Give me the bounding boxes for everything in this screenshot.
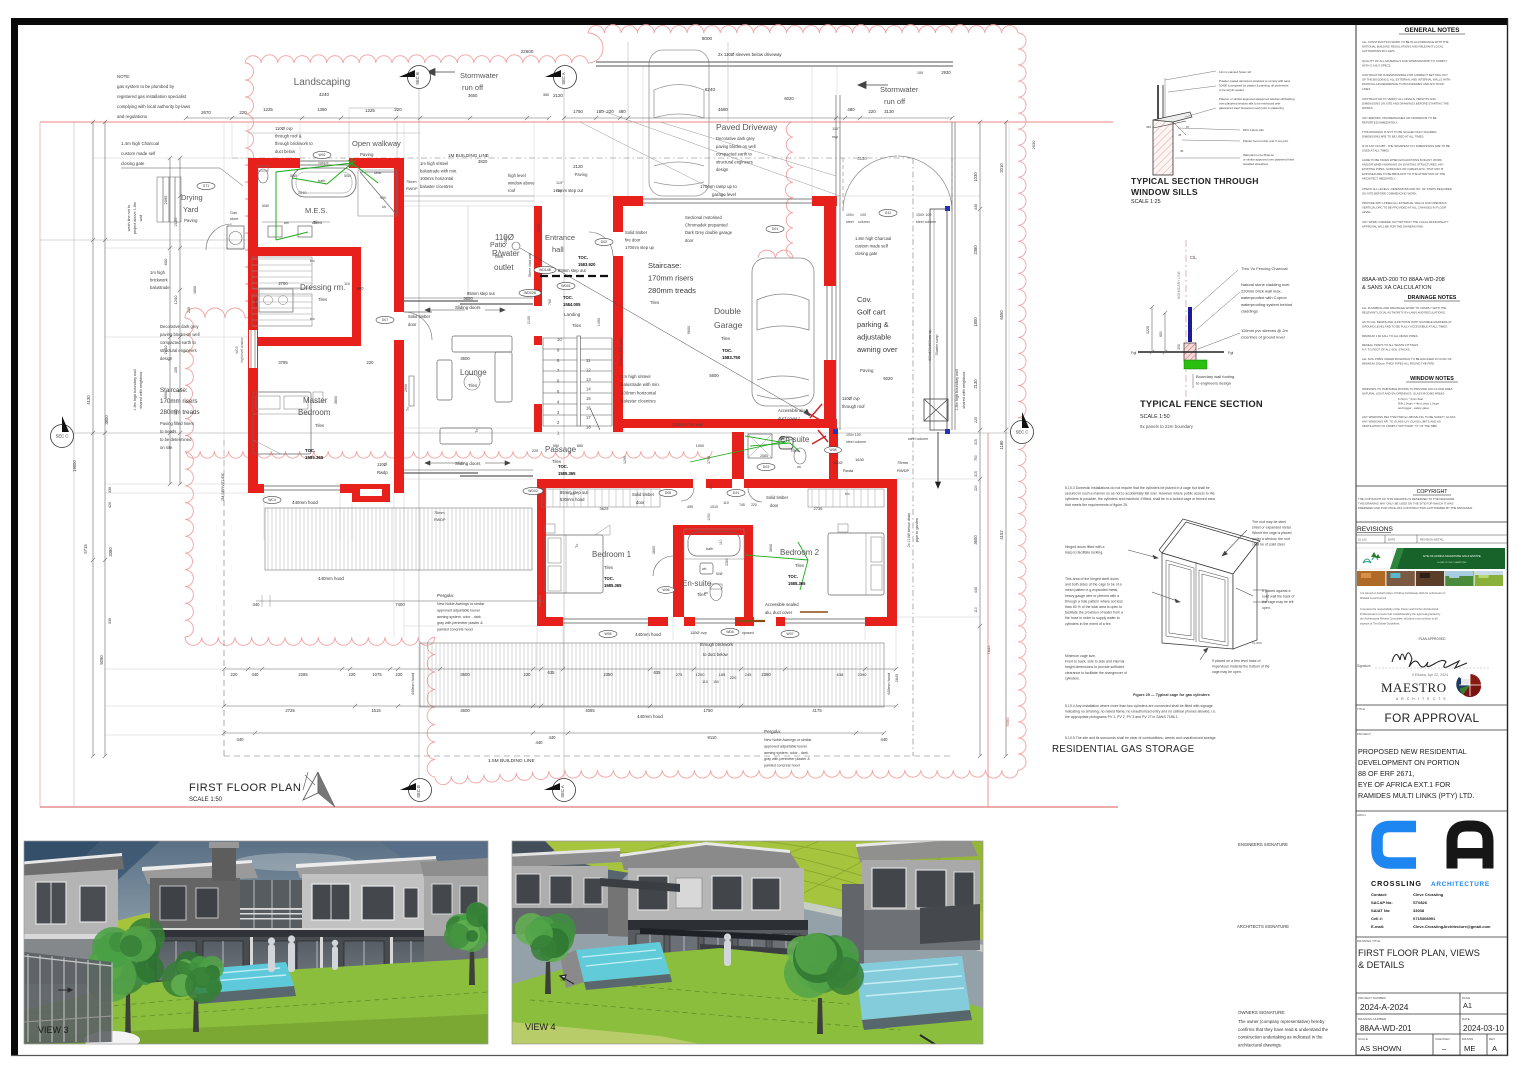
svg-text:Tiles: Tiles <box>604 565 614 570</box>
svg-text:sh: sh <box>382 205 386 209</box>
svg-text:Plaster formed drip and V-cut: Plaster formed drip and V-cut joint <box>1243 139 1288 143</box>
svg-text:WINDOW NOTES: WINDOW NOTES <box>1410 376 1454 382</box>
svg-text:2100: 2100 <box>527 316 531 324</box>
svg-text:280mm treads: 280mm treads <box>648 286 696 295</box>
svg-text:through roof &: through roof & <box>275 134 302 139</box>
svg-text:TOC.: TOC. <box>578 255 588 260</box>
svg-text:VIEW 3: VIEW 3 <box>38 1025 69 1035</box>
svg-text:DATE: DATE <box>1388 538 1395 542</box>
svg-text:1180: 1180 <box>999 440 1004 450</box>
svg-text:75mm: 75mm <box>897 460 909 465</box>
svg-text:850: 850 <box>577 444 583 448</box>
svg-text:DRAWN: DRAWN <box>1462 1037 1473 1041</box>
svg-text:2x 110Ø sleeves below driveway: 2x 110Ø sleeves below driveway <box>718 52 782 57</box>
svg-text:4175: 4175 <box>812 708 822 713</box>
svg-text:ANY WINDOWS PE4 THAN 500mm ABO: ANY WINDOWS PE4 THAN 500mm ABOVE FFL TO … <box>1362 415 1455 419</box>
svg-text:WD3: WD3 <box>235 346 239 353</box>
svg-text:1630: 1630 <box>855 457 865 462</box>
svg-text:gray with perimeter plaster &: gray with perimeter plaster & <box>764 757 810 761</box>
svg-text:shared with neighbour: shared with neighbour <box>962 371 966 409</box>
svg-text:window above: window above <box>508 181 535 186</box>
svg-text:110: 110 <box>702 680 708 684</box>
svg-text:220: 220 <box>524 672 532 677</box>
svg-text:BOUNDARY LINE: BOUNDARY LINE <box>1177 270 1181 298</box>
svg-text:ANY WINDOWS NR. TO GLASS LVY: ANY WINDOWS NR. TO GLASS LVY GLASS LIMIT… <box>1362 420 1441 424</box>
svg-text:to engineers design: to engineers design <box>1196 381 1231 386</box>
svg-text:3380: 3380 <box>108 547 113 557</box>
svg-text:10: 10 <box>557 337 562 342</box>
svg-text:50Ø: 50Ø <box>716 572 723 576</box>
svg-text:5020: 5020 <box>883 376 893 381</box>
svg-text:outlet: outlet <box>494 263 514 272</box>
svg-text:W05: W05 <box>605 632 612 636</box>
svg-text:Sliding doors: Sliding doors <box>455 461 481 466</box>
svg-text:aspects of The Estate Guidelin: aspects of The Estate Guidelines. <box>1360 621 1400 625</box>
svg-text:2930: 2930 <box>941 70 951 75</box>
svg-text:12: 12 <box>586 368 591 373</box>
svg-text:RAMIDES MULTI LINKS (PTY) LTD.: RAMIDES MULTI LINKS (PTY) LTD. <box>1358 791 1474 800</box>
svg-text:330: 330 <box>108 487 112 493</box>
svg-text:600: 600 <box>163 258 168 265</box>
svg-text:CROSSLING: CROSSLING <box>1371 879 1422 888</box>
svg-text:WC4: WC4 <box>268 498 276 502</box>
svg-text:ALL CONSTRUCTION WORK TO BE IN: ALL CONSTRUCTION WORK TO BE IN ACCORDANC… <box>1362 40 1449 44</box>
svg-text:baluster c/centres: baluster c/centres <box>621 399 656 404</box>
svg-text:WITH S.A.B.S SPECS.: WITH S.A.B.S SPECS. <box>1362 64 1391 68</box>
svg-text:balustrade with min.: balustrade with min. <box>621 382 660 387</box>
svg-text:Accessible sealed: Accessible sealed <box>765 602 799 607</box>
svg-text:638: 638 <box>837 672 844 677</box>
svg-text:6550: 6550 <box>999 310 1004 320</box>
svg-text:DATE: DATE <box>1462 1017 1470 1021</box>
svg-text:Rwdp: Rwdp <box>377 470 388 475</box>
svg-text:745: 745 <box>739 503 745 507</box>
svg-text:pipe to garden: pipe to garden <box>915 518 919 542</box>
svg-text:REV: REV <box>1489 1037 1495 1041</box>
svg-text:AS TO ALL BENDS AND JUNCTIONS: AS TO ALL BENDS AND JUNCTIONS WITH SUITA… <box>1362 320 1452 324</box>
svg-text:2M SERVITUDE: 2M SERVITUDE <box>221 473 225 501</box>
svg-text:460: 460 <box>1146 125 1151 129</box>
svg-text:750: 750 <box>974 455 978 461</box>
svg-text:QUALITY OF ALL MATERIALS AND W: QUALITY OF ALL MATERIALS AND WORKMANSHIP… <box>1362 59 1448 63</box>
svg-text:D05: D05 <box>665 491 671 495</box>
svg-text:A1: A1 <box>1463 1001 1472 1010</box>
svg-text:DRAINAGE NOTES: DRAINAGE NOTES <box>1408 295 1457 301</box>
svg-text:Decorative dark grey: Decorative dark grey <box>716 136 756 141</box>
svg-text:If placed against a: If placed against a <box>1262 589 1290 593</box>
svg-text:6 /Sq.m * 4mm float: 6 /Sq.m * 4mm float <box>1398 397 1423 401</box>
svg-text:Solid timber: Solid timber <box>766 495 789 500</box>
svg-text:NOTE:: NOTE: <box>117 74 130 79</box>
svg-text:3600: 3600 <box>460 672 470 677</box>
svg-text:E-mail:: E-mail: <box>1371 924 1384 929</box>
svg-text:650: 650 <box>1159 331 1163 337</box>
svg-text:88AA-WD-200 TO 88AA-WD-208: 88AA-WD-200 TO 88AA-WD-208 <box>1362 277 1445 283</box>
svg-text:wash line not to: wash line not to <box>127 205 131 231</box>
svg-text:440: 440 <box>536 740 544 745</box>
svg-text:33038: 33038 <box>1413 908 1425 913</box>
svg-text:Decorative dark grey: Decorative dark grey <box>160 324 200 329</box>
svg-text:100mm horizontal: 100mm horizontal <box>420 176 453 181</box>
svg-text:Double: Double <box>714 306 741 316</box>
svg-text:design: design <box>716 167 729 172</box>
svg-text:wc: wc <box>704 591 708 595</box>
svg-text:AND/OR WHEN WORKING ON EXISTIN: AND/OR WHEN WORKING ON EXISTING STRUCTUR… <box>1362 163 1444 167</box>
svg-text:It is issued on behalf of Eye: It is issued on behalf of Eye Of Africa … <box>1360 591 1446 595</box>
svg-text:2360: 2360 <box>725 558 729 566</box>
svg-text:b/c: b/c <box>310 259 315 263</box>
svg-text:Passage: Passage <box>545 445 577 454</box>
svg-text:EYE OF AFRICA SIGNATURE GOLF E: EYE OF AFRICA SIGNATURE GOLF ESTATE <box>1423 554 1481 558</box>
svg-text:structural engineers: structural engineers <box>160 348 197 353</box>
svg-text:approved adjustable louver: approved adjustable louver <box>764 744 808 748</box>
svg-text:the Architectural Review Commi: the Architectural Review Committee, all … <box>1360 617 1438 621</box>
svg-text:Paved Driveway: Paved Driveway <box>716 122 778 132</box>
svg-text:awning system, color - dark: awning system, color - dark <box>764 751 808 755</box>
svg-text:architectural drawings.: architectural drawings. <box>1238 1042 1282 1047</box>
svg-text:Accessible alu: Accessible alu <box>778 408 805 413</box>
svg-text:VENTILATION TO COMPLY WITH PAR: VENTILATION TO COMPLY WITH PART "O" OF T… <box>1362 424 1438 428</box>
svg-text:R/B 1.0sqm = 4mm thick 1.0sqm: R/B 1.0sqm = 4mm thick 1.0sqm <box>1398 402 1440 406</box>
svg-text:SACAP No:: SACAP No: <box>1371 900 1393 905</box>
svg-text:cylinders is possible, the cyl: cylinders is possible, the cylinders and… <box>1065 497 1215 501</box>
svg-text:If placed on a firm level base: If placed on a firm level base of <box>1212 659 1260 663</box>
svg-text:3650: 3650 <box>468 93 478 98</box>
svg-text:En-suite: En-suite <box>682 579 712 588</box>
svg-text:440mm hood: 440mm hood <box>411 673 415 695</box>
svg-text:Tiles: Tiles <box>650 300 660 305</box>
svg-text:or similar approved over plast: or similar approved over plastered finis… <box>1243 158 1295 162</box>
svg-text:110: 110 <box>709 484 713 490</box>
svg-text:22600: 22600 <box>521 49 534 54</box>
svg-text:standard elsewhere: standard elsewhere <box>1243 162 1269 166</box>
svg-text:5090: 5090 <box>1005 717 1010 727</box>
svg-text:220: 220 <box>606 109 614 114</box>
svg-text:2010: 2010 <box>999 163 1004 173</box>
svg-text:3130: 3130 <box>857 156 867 161</box>
svg-text:D24: D24 <box>733 491 739 495</box>
svg-text:7400: 7400 <box>395 602 405 607</box>
svg-text:seat: seat <box>374 171 382 175</box>
svg-text:Open walkway: Open walkway <box>352 139 401 148</box>
svg-text:rwp: rwp <box>556 189 562 193</box>
svg-text:990: 990 <box>380 196 386 200</box>
svg-text:ON SITE BEFORE COMMENCING WORK: ON SITE BEFORE COMMENCING WORK. <box>1362 192 1417 196</box>
svg-text:waterproofing system behind: waterproofing system behind <box>1241 302 1292 307</box>
svg-text:PROVIDE DPC UNDER ALL EXTERNAL: PROVIDE DPC UNDER ALL EXTERNAL WALLS AND… <box>1362 201 1448 205</box>
svg-text:REPORTED IMMEDIATELY.: REPORTED IMMEDIATELY. <box>1362 121 1398 125</box>
svg-text:3600: 3600 <box>460 708 470 713</box>
svg-text:Paving: Paving <box>184 218 198 223</box>
svg-text:Contact:: Contact: <box>1371 892 1387 897</box>
svg-text:IF IN ANY DOUBT - THE SHARPEST: IF IN ANY DOUBT - THE SHARPEST FLY DIMEN… <box>1362 144 1450 148</box>
svg-text:1584.005: 1584.005 <box>563 302 581 307</box>
svg-text:D01: D01 <box>772 227 778 231</box>
svg-text:on site: on site <box>160 445 173 450</box>
svg-text:to duct below: to duct below <box>703 652 729 657</box>
svg-text:ST0826: ST0826 <box>1413 900 1428 905</box>
svg-text:50Ø: 50Ø <box>344 174 351 178</box>
svg-text:SCALE 1:25: SCALE 1:25 <box>1131 199 1161 205</box>
svg-text:Yard: Yard <box>183 205 198 214</box>
svg-text:3795: 3795 <box>278 360 288 365</box>
svg-text:Entrance: Entrance <box>545 233 575 242</box>
svg-text:REVISIONS: REVISIONS <box>1357 526 1394 533</box>
svg-text:fire door: fire door <box>625 238 641 243</box>
svg-text:awning system, color - dark: awning system, color - dark <box>437 615 481 619</box>
svg-text:RESEAL TRAPS TO ALL WASTE FITT: RESEAL TRAPS TO ALL WASTE FITTINGS. <box>1362 343 1419 347</box>
svg-text:280mm treads: 280mm treads <box>160 409 200 416</box>
svg-text:HOME OF THE CHAMPIONS: HOME OF THE CHAMPIONS <box>1437 561 1467 564</box>
svg-text:duct cover r: duct cover r <box>778 416 800 421</box>
svg-text:3800: 3800 <box>334 396 338 404</box>
svg-text:heavy gauge wire or pierced wi: heavy gauge wire or pierced with a <box>1065 594 1119 598</box>
svg-text:Thru Vu Fencing Charcoal: Thru Vu Fencing Charcoal <box>1241 266 1288 271</box>
svg-text:1m high s/steel: 1m high s/steel <box>420 161 448 166</box>
svg-text:1800: 1800 <box>193 286 197 294</box>
svg-text:8000: 8000 <box>702 36 713 41</box>
svg-text:LEVEL.: LEVEL. <box>1362 210 1372 214</box>
svg-text:2030: 2030 <box>1031 140 1036 150</box>
svg-text:Tiles: Tiles <box>315 423 325 428</box>
svg-text:It remains the responsibility: It remains the responsibility of the Own… <box>1360 607 1439 611</box>
svg-text:1050: 1050 <box>707 513 711 521</box>
svg-text:painted concrete hood: painted concrete hood <box>437 628 473 632</box>
svg-text:220: 220 <box>730 675 737 680</box>
svg-text:ARCHITECTS SIGNATURE: ARCHITECTS SIGNATURE <box>1237 924 1289 929</box>
svg-text:245: 245 <box>745 672 752 677</box>
svg-text:88AA-WD-201: 88AA-WD-201 <box>1360 1024 1412 1033</box>
svg-text:parking &: parking & <box>857 320 889 329</box>
svg-text:LINES.: LINES. <box>1362 87 1371 91</box>
svg-text:M.E.S.: M.E.S. <box>305 206 328 215</box>
svg-text:440: 440 <box>253 602 261 607</box>
svg-text:SEC B: SEC B <box>415 72 420 85</box>
svg-text:cylinders.: cylinders. <box>1065 676 1080 680</box>
svg-text:Stormwater: Stormwater <box>460 71 499 80</box>
svg-text:9110: 9110 <box>707 735 717 740</box>
svg-text:WD01: WD01 <box>561 284 571 288</box>
svg-text:GENERAL NOTES: GENERAL NOTES <box>1405 27 1461 34</box>
svg-text:1790: 1790 <box>707 456 711 464</box>
svg-text:TOC.: TOC. <box>563 295 573 300</box>
svg-text:cage may be open.: cage may be open. <box>1212 670 1242 674</box>
svg-text:4152: 4152 <box>999 530 1004 540</box>
svg-text:bath: bath <box>706 547 713 551</box>
svg-text:11: 11 <box>586 358 591 363</box>
svg-text:RELEVANT LOCAL AUTHORITY BY-LA: RELEVANT LOCAL AUTHORITY BY-LAWS AND REG… <box>1362 311 1446 315</box>
svg-text:1030: 1030 <box>973 172 978 182</box>
svg-text:100: 100 <box>917 71 923 75</box>
svg-text:150: 150 <box>596 109 604 114</box>
svg-text:Rwda: Rwda <box>843 468 854 473</box>
svg-text:solid wall the back of: solid wall the back of <box>1262 595 1294 599</box>
svg-text:88 OF ERF 2671,: 88 OF ERF 2671, <box>1358 769 1414 778</box>
svg-text:VERTICAL DPC TO BE PROVIDED AT: VERTICAL DPC TO BE PROVIDED AT ALL CHANG… <box>1362 206 1446 210</box>
svg-text:D07: D07 <box>382 318 388 322</box>
svg-text:open.: open. <box>1262 606 1271 610</box>
svg-text:garage level: garage level <box>712 192 736 197</box>
svg-text:1800: 1800 <box>973 317 978 327</box>
svg-text:Lounge: Lounge <box>460 368 487 377</box>
svg-text:hall: hall <box>552 245 564 254</box>
svg-text:110: 110 <box>344 282 350 286</box>
svg-text:run off: run off <box>462 83 484 92</box>
svg-text:110Ø: 110Ø <box>377 462 388 467</box>
svg-text:and both sides of the cage to: and both sides of the cage to be of a <box>1065 583 1122 587</box>
svg-text:440mm hood: 440mm hood <box>318 576 344 581</box>
svg-text:3600: 3600 <box>769 544 773 552</box>
svg-text:steel column: steel column <box>916 220 936 224</box>
svg-text:15: 15 <box>586 396 591 401</box>
svg-text:COPYRIGHT: COPYRIGHT <box>1417 489 1449 495</box>
svg-text:220: 220 <box>868 109 876 114</box>
svg-text:DRAWING NUMBER: DRAWING NUMBER <box>1358 1017 1387 1021</box>
svg-text:2735: 2735 <box>814 506 824 511</box>
svg-text:275: 275 <box>676 672 683 677</box>
svg-text:110Ø cvp: 110Ø cvp <box>690 630 708 635</box>
svg-text:Tiles: Tiles <box>721 336 731 341</box>
svg-text:RWDP: RWDP <box>406 187 418 191</box>
svg-text:Tiles: Tiles <box>494 254 504 259</box>
svg-text:Cleve Crossling: Cleve Crossling <box>1413 892 1444 897</box>
svg-text:2024-A-2024: 2024-A-2024 <box>1360 1002 1409 1012</box>
svg-text:Minimum cage size.: Minimum cage size. <box>1065 654 1096 658</box>
svg-text:2x 110Ø below drain: 2x 110Ø below drain <box>907 513 911 548</box>
svg-text:Plascon or similar approved wa: Plascon or similar approved waterproof w… <box>1219 97 1295 101</box>
svg-text:1.8m high boundary wall: 1.8m high boundary wall <box>955 369 959 410</box>
svg-text:TOC.: TOC. <box>558 464 568 469</box>
svg-text:100: 100 <box>860 213 866 217</box>
svg-text:110mm pvc sleeves @ 2m: 110mm pvc sleeves @ 2m <box>1241 328 1289 333</box>
svg-text:steel column: steel column <box>908 437 928 441</box>
svg-text:100X 100: 100X 100 <box>916 213 931 217</box>
svg-text:350: 350 <box>543 93 549 97</box>
svg-text:rwp: rwp <box>832 135 838 139</box>
svg-text:600x600x600mm sp.: 600x600x600mm sp. <box>928 329 932 361</box>
svg-text:EYE OF AFRICA EXT.1 FOR: EYE OF AFRICA EXT.1 FOR <box>1358 780 1450 789</box>
svg-text:ANY WORK CARRIED OUT WITHOUT T: ANY WORK CARRIED OUT WITHOUT THE LOCAL M… <box>1362 220 1449 224</box>
svg-text:760: 760 <box>548 299 552 305</box>
svg-text:ANY ERRORS, DISCREPANCIES OR O: ANY ERRORS, DISCREPANCIES OR OMISSIONS T… <box>1362 116 1437 120</box>
svg-text:220: 220 <box>394 107 402 112</box>
svg-text:NATIONAL BUILDING REGULATIONS: NATIONAL BUILDING REGULATIONS AND RELEVA… <box>1362 45 1444 49</box>
svg-text:confirms that they have read &: confirms that they have read & understan… <box>1238 1027 1329 1032</box>
svg-text:18: 18 <box>586 425 591 430</box>
svg-text:Cell #:: Cell #: <box>1371 916 1383 921</box>
svg-text:S/water sump: S/water sump <box>935 335 939 356</box>
svg-text:220mm Fire wall: 220mm Fire wall <box>619 338 623 366</box>
svg-text:Chromadek prepainted: Chromadek prepainted <box>685 223 728 228</box>
svg-text:balustrade with min.: balustrade with min. <box>420 169 457 174</box>
svg-text:2725: 2725 <box>285 708 295 713</box>
svg-text:Cov.: Cov. <box>857 295 872 304</box>
svg-text:THIS DRAWING MAY ONLY BE USED: THIS DRAWING MAY ONLY BE USED ON THE SIT… <box>1358 502 1453 506</box>
svg-text:PARTICULAR REFERENCE TO BOUNDA: PARTICULAR REFERENCE TO BOUNDARIES AND A… <box>1362 82 1444 86</box>
svg-text:door: door <box>685 238 694 243</box>
svg-text:105: 105 <box>174 367 178 373</box>
svg-text:Golf cart: Golf cart <box>857 308 886 317</box>
svg-text:RWDP: RWDP <box>897 468 909 473</box>
svg-text:3820: 3820 <box>478 159 488 164</box>
svg-text:SEC B: SEC B <box>416 785 421 798</box>
svg-text:Paving filled risers: Paving filled risers <box>160 421 194 426</box>
svg-text:Wall paint to be Plascon: Wall paint to be Plascon <box>1243 153 1274 157</box>
svg-text:AS SHOWN: AS SHOWN <box>1360 1044 1401 1053</box>
svg-text:Tv: Tv <box>575 544 579 548</box>
svg-text:Fgl: Fgl <box>1228 351 1233 355</box>
svg-text:6240: 6240 <box>705 87 716 92</box>
svg-text:fire hose in order to supply w: fire hose in order to supply water to <box>1065 616 1120 620</box>
svg-text:1010: 1010 <box>710 505 718 509</box>
svg-text:170mm step up: 170mm step up <box>625 245 655 250</box>
svg-text:APPROVAL WILL BE FOR THE OWNER: APPROVAL WILL BE FOR THE OWNERS RISK. <box>1362 225 1424 229</box>
svg-text:painted concrete hood: painted concrete hood <box>764 764 800 768</box>
svg-text:0 Elkana, Apr 22, 2024: 0 Elkana, Apr 22, 2024 <box>1412 673 1448 677</box>
svg-text:950: 950 <box>553 444 559 448</box>
svg-text:structural engineers: structural engineers <box>716 159 753 164</box>
svg-text:ME: ME <box>1464 1044 1475 1053</box>
svg-text:This area of the hinged steel: This area of the hinged steel doors <box>1065 577 1119 581</box>
svg-text:Stormwater: Stormwater <box>880 85 919 94</box>
svg-text:0715308991: 0715308991 <box>1413 916 1436 921</box>
svg-text:the cage may be left: the cage may be left <box>1262 600 1294 604</box>
svg-text:75mm: 75mm <box>406 180 417 184</box>
svg-text:1.8m high Charcoal: 1.8m high Charcoal <box>855 236 891 241</box>
svg-text:WINDOWS TO HABITABLE ROOMS TO: WINDOWS TO HABITABLE ROOMS TO PROVIDE 10… <box>1362 387 1453 391</box>
svg-text:Solid timber: Solid timber <box>625 230 648 235</box>
svg-text:6020: 6020 <box>784 96 794 101</box>
svg-text:b/c: b/c <box>845 492 850 496</box>
svg-text:CARE TO BE TAKEN WHEN EXCAVATI: CARE TO BE TAKEN WHEN EXCAVATIONS FOR AN… <box>1362 158 1442 162</box>
svg-text:Where the cage is placed: Where the cage is placed <box>1252 531 1292 535</box>
svg-text:110°: 110° <box>832 127 840 131</box>
svg-text:480: 480 <box>618 109 626 114</box>
svg-text:3600: 3600 <box>460 356 470 361</box>
svg-text:Solid timber: Solid timber <box>632 492 655 497</box>
svg-text:project above 1.8m: project above 1.8m <box>133 202 137 234</box>
svg-text:D03: D03 <box>763 465 769 469</box>
svg-text:W06: W06 <box>663 588 670 592</box>
svg-text:220: 220 <box>751 503 757 507</box>
svg-text:2100: 2100 <box>537 224 541 232</box>
svg-text:100x 100: 100x 100 <box>846 433 861 437</box>
svg-text:to be acrylic sealed: to be acrylic sealed <box>1219 88 1244 92</box>
svg-text:85mm step out: 85mm step out <box>467 291 496 296</box>
svg-text:EXPOSED ARE TO BE BROUGHT TO T: EXPOSED ARE TO BE BROUGHT TO THE ATTENTI… <box>1362 172 1445 176</box>
svg-text:5.10.3 Domestic installations: 5.10.3 Domestic installations do not req… <box>1065 486 1210 490</box>
svg-text:ENGINEERS SIGNATURE: ENGINEERS SIGNATURE <box>1238 842 1288 847</box>
svg-text:220: 220 <box>974 485 978 491</box>
svg-text:CHECK ALL LEVELS, DIMENSIONS A: CHECK ALL LEVELS, DIMENSIONS AND NO. OF … <box>1362 187 1452 191</box>
svg-text:galvanized steel. Expamet mesh: galvanized steel. Expamet mesh prior to … <box>1219 106 1284 110</box>
svg-text:635: 635 <box>548 670 556 675</box>
svg-text:REVISION DETAIL: REVISION DETAIL <box>1420 538 1444 542</box>
svg-text:Paving: Paving <box>360 152 374 157</box>
svg-text:door: door <box>408 322 417 327</box>
svg-text:under a window, the roof: under a window, the roof <box>1252 537 1290 541</box>
svg-text:Pergola:: Pergola: <box>437 593 454 598</box>
svg-text:9600: 9600 <box>687 326 691 334</box>
svg-text:MAESTRO: MAESTRO <box>1381 680 1447 695</box>
svg-text:440: 440 <box>252 672 260 677</box>
svg-text:EXISTING PIPES, SURFACES OR CA: EXISTING PIPES, SURFACES OR CABLES ETC. … <box>1362 167 1443 171</box>
svg-text:SEC A: SEC A <box>560 785 565 798</box>
svg-text:4680: 4680 <box>718 107 728 112</box>
svg-text:wb: wb <box>284 221 289 225</box>
svg-text:hasp to facilitate locking.: hasp to facilitate locking. <box>1065 551 1103 555</box>
svg-text:110Ø: 110Ø <box>833 460 843 465</box>
